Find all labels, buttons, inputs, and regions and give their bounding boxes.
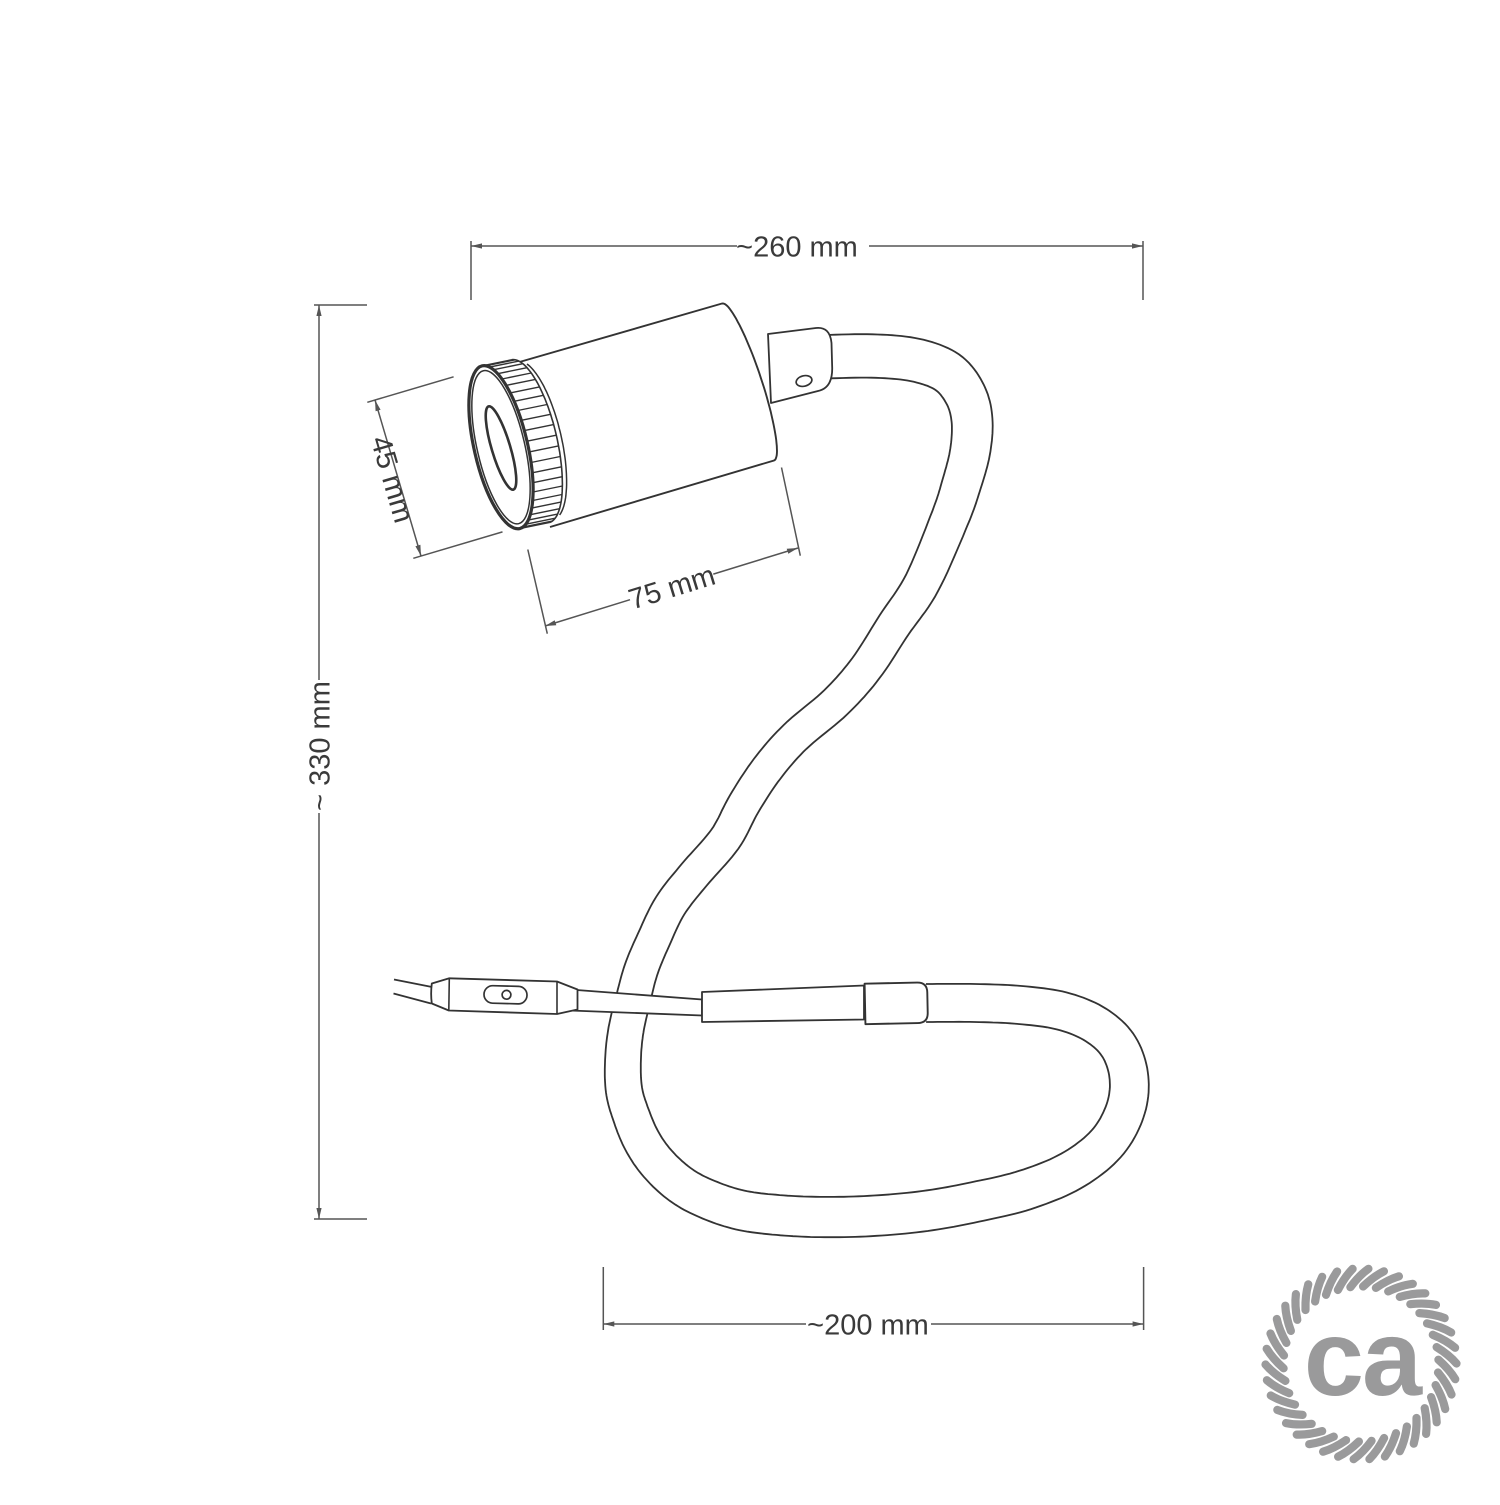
svg-text:~260 mm: ~260 mm xyxy=(736,232,858,264)
svg-text:~200 mm: ~200 mm xyxy=(807,1310,929,1342)
svg-text:~ 330 mm: ~ 330 mm xyxy=(305,681,337,811)
svg-text:ca: ca xyxy=(1304,1297,1423,1418)
